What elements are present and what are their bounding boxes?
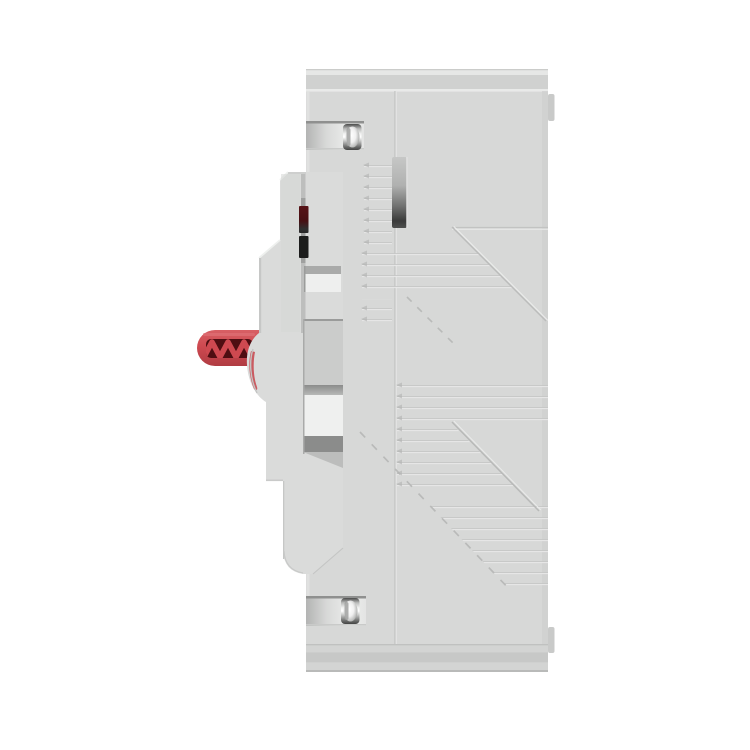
- case-top-bevel: [306, 69, 548, 92]
- rail-tab-bottom: [548, 627, 555, 653]
- cover-screw-bottom: [306, 596, 366, 626]
- product-image: Molded case circuit breaker, side profil…: [0, 0, 750, 750]
- breaker-side-view: Molded case circuit breaker, side profil…: [0, 0, 750, 750]
- rail-tab-top: [548, 94, 555, 121]
- case-vent-slot: [392, 157, 407, 228]
- mechanism-recess: [303, 319, 343, 468]
- main-case: [306, 69, 555, 672]
- case-bottom-bevel: [306, 644, 548, 672]
- front-cover: [247, 172, 343, 574]
- vent-slot-edge: [406, 157, 407, 228]
- trip-indicator-window: [299, 206, 309, 233]
- cover-screw-top: [306, 121, 364, 150]
- auxiliary-slot: [299, 236, 309, 258]
- upper-recess: [304, 266, 341, 292]
- handle-top-highlight: [203, 333, 255, 336]
